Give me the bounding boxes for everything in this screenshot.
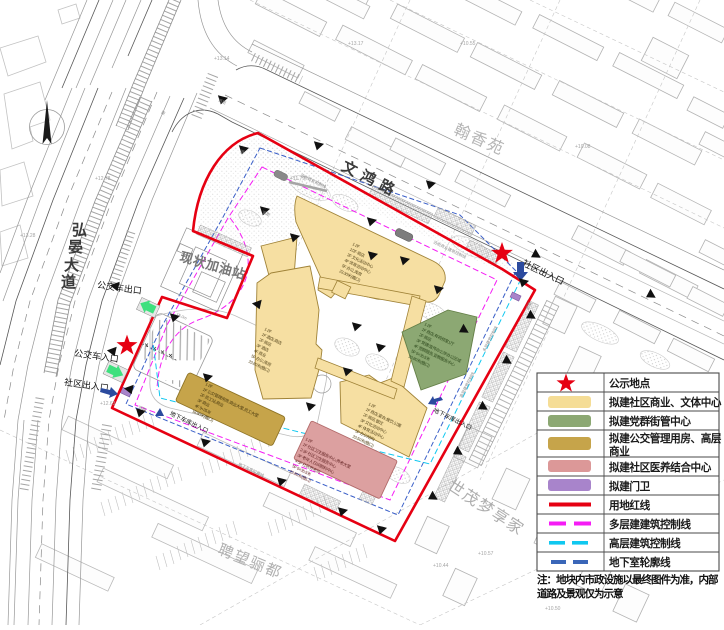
svg-text:地下室轮廓线: 地下室轮廓线 bbox=[609, 556, 671, 569]
svg-text:晏: 晏 bbox=[68, 239, 83, 256]
svg-text:+13.28: +13.28 bbox=[20, 233, 36, 239]
svg-text:拟建社区医养结合中心: 拟建社区医养结合中心 bbox=[609, 461, 712, 474]
svg-text:大: 大 bbox=[64, 256, 79, 274]
svg-text:拟建党群街管中心: 拟建党群街管中心 bbox=[609, 415, 691, 428]
svg-text:+10.57: +10.57 bbox=[478, 551, 494, 557]
svg-text:+11.79: +11.79 bbox=[290, 176, 305, 182]
svg-text:高层建筑控制线: 高层建筑控制线 bbox=[609, 537, 681, 550]
svg-text:弘: 弘 bbox=[72, 222, 87, 239]
svg-text:公示地点: 公示地点 bbox=[609, 377, 651, 390]
svg-text:多层建建筑控制线: 多层建建筑控制线 bbox=[609, 518, 691, 531]
svg-text:道: 道 bbox=[61, 273, 76, 291]
svg-text:+13.17: +13.17 bbox=[348, 41, 364, 47]
svg-text:+10.44: +10.44 bbox=[433, 563, 449, 569]
svg-text:+13.14: +13.14 bbox=[214, 56, 230, 62]
svg-text:+12.78: +12.78 bbox=[95, 176, 111, 182]
svg-text:注：地块内市政设施以最终图件为准，内部: 注：地块内市政设施以最终图件为准，内部 bbox=[537, 573, 719, 586]
svg-text:+10.55: +10.55 bbox=[460, 41, 476, 47]
svg-text:+10.50: +10.50 bbox=[545, 606, 561, 612]
svg-text:+10.08: +10.08 bbox=[575, 144, 591, 150]
svg-text:用地红线: 用地红线 bbox=[608, 499, 651, 512]
svg-text:商业: 商业 bbox=[609, 445, 630, 458]
svg-text:+12.63: +12.63 bbox=[100, 401, 116, 407]
svg-text:道路及景观仅为示意: 道路及景观仅为示意 bbox=[537, 587, 624, 600]
svg-text:拟建公交管理用房、高层: 拟建公交管理用房、高层 bbox=[609, 432, 722, 445]
svg-text:拟建门卫: 拟建门卫 bbox=[609, 480, 651, 493]
svg-text:拟建社区商业、文体中心: 拟建社区商业、文体中心 bbox=[609, 396, 722, 409]
